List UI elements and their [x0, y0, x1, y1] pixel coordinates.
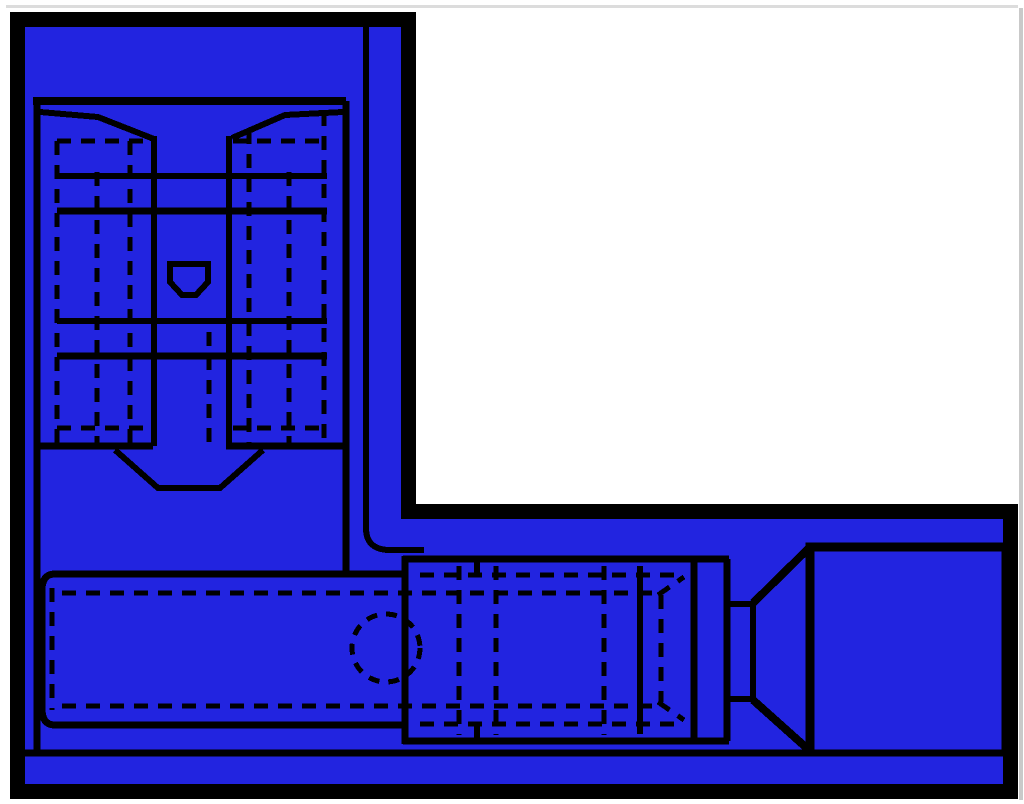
terminal-two-view-drawing — [0, 0, 1024, 804]
edge-artifact-0 — [6, 5, 1018, 8]
edge-artifact-1 — [1019, 8, 1023, 800]
screenshot-canvas — [0, 0, 1024, 804]
